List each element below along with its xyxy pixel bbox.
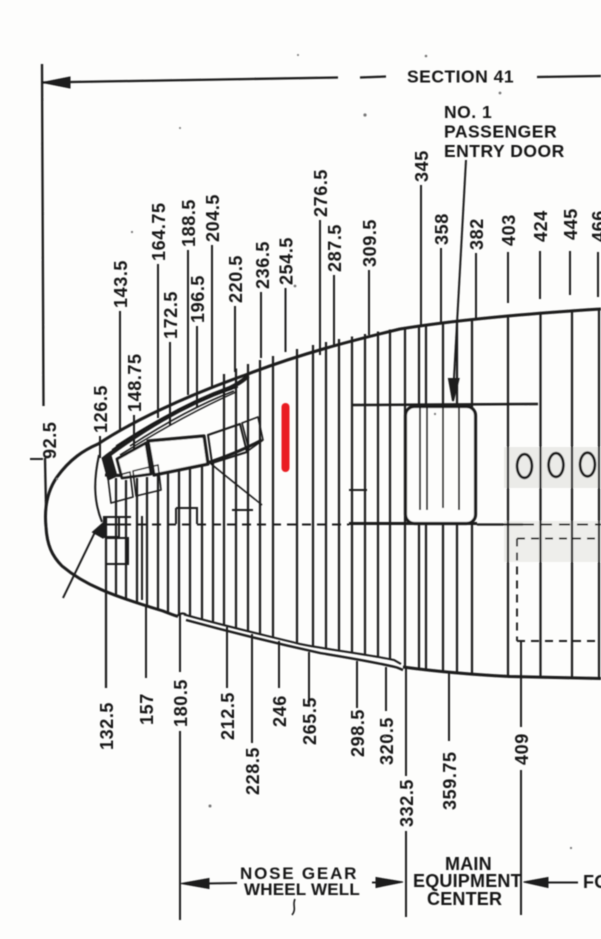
svg-text:254.5: 254.5: [277, 237, 297, 285]
svg-text:92.5: 92.5: [40, 422, 60, 459]
svg-text:143.5: 143.5: [111, 260, 131, 308]
svg-text:265.5: 265.5: [300, 697, 320, 745]
svg-text:172.5: 172.5: [161, 291, 181, 339]
svg-text:358: 358: [432, 213, 452, 245]
svg-text:180.5: 180.5: [171, 679, 191, 727]
svg-text:309.5: 309.5: [360, 219, 380, 267]
svg-text:204.5: 204.5: [203, 194, 223, 242]
svg-text:228.5: 228.5: [243, 747, 263, 795]
svg-text:287.5: 287.5: [325, 224, 345, 272]
svg-text:132.5: 132.5: [97, 702, 117, 750]
svg-text:212.5: 212.5: [218, 692, 238, 740]
svg-text:FORWARD: FORWARD: [583, 872, 601, 892]
svg-text:382: 382: [467, 218, 487, 250]
svg-text:424: 424: [531, 210, 551, 242]
svg-text:126.5: 126.5: [91, 385, 111, 433]
svg-text:157: 157: [137, 693, 157, 725]
svg-text:220.5: 220.5: [226, 255, 246, 303]
svg-text:359.75: 359.75: [440, 751, 460, 810]
svg-text:246: 246: [270, 695, 290, 727]
svg-text:188.5: 188.5: [179, 199, 199, 247]
svg-text:NO. 1: NO. 1: [444, 102, 492, 122]
svg-text:148.75: 148.75: [125, 353, 145, 412]
svg-text:276.5: 276.5: [311, 169, 331, 217]
svg-text:409: 409: [512, 733, 532, 765]
svg-text:PASSENGER: PASSENGER: [444, 122, 557, 142]
svg-text:320.5: 320.5: [377, 717, 397, 765]
svg-text:164.75: 164.75: [149, 202, 169, 261]
svg-text:236.5: 236.5: [253, 241, 273, 289]
svg-text:196.5: 196.5: [188, 275, 208, 323]
svg-text:298.5: 298.5: [348, 709, 368, 757]
svg-text:ENTRY DOOR: ENTRY DOOR: [444, 141, 565, 161]
svg-text:445: 445: [561, 208, 581, 240]
svg-text:403: 403: [499, 214, 519, 246]
svg-text:CENTER: CENTER: [427, 889, 502, 909]
svg-text:345: 345: [412, 150, 432, 182]
svg-text:332.5: 332.5: [397, 779, 417, 827]
svg-text:466: 466: [589, 210, 601, 242]
svg-text:EQUIPMENT: EQUIPMENT: [413, 871, 522, 891]
svg-text:SECTION 41: SECTION 41: [407, 67, 514, 87]
svg-text:WHEEL WELL: WHEEL WELL: [244, 880, 360, 899]
